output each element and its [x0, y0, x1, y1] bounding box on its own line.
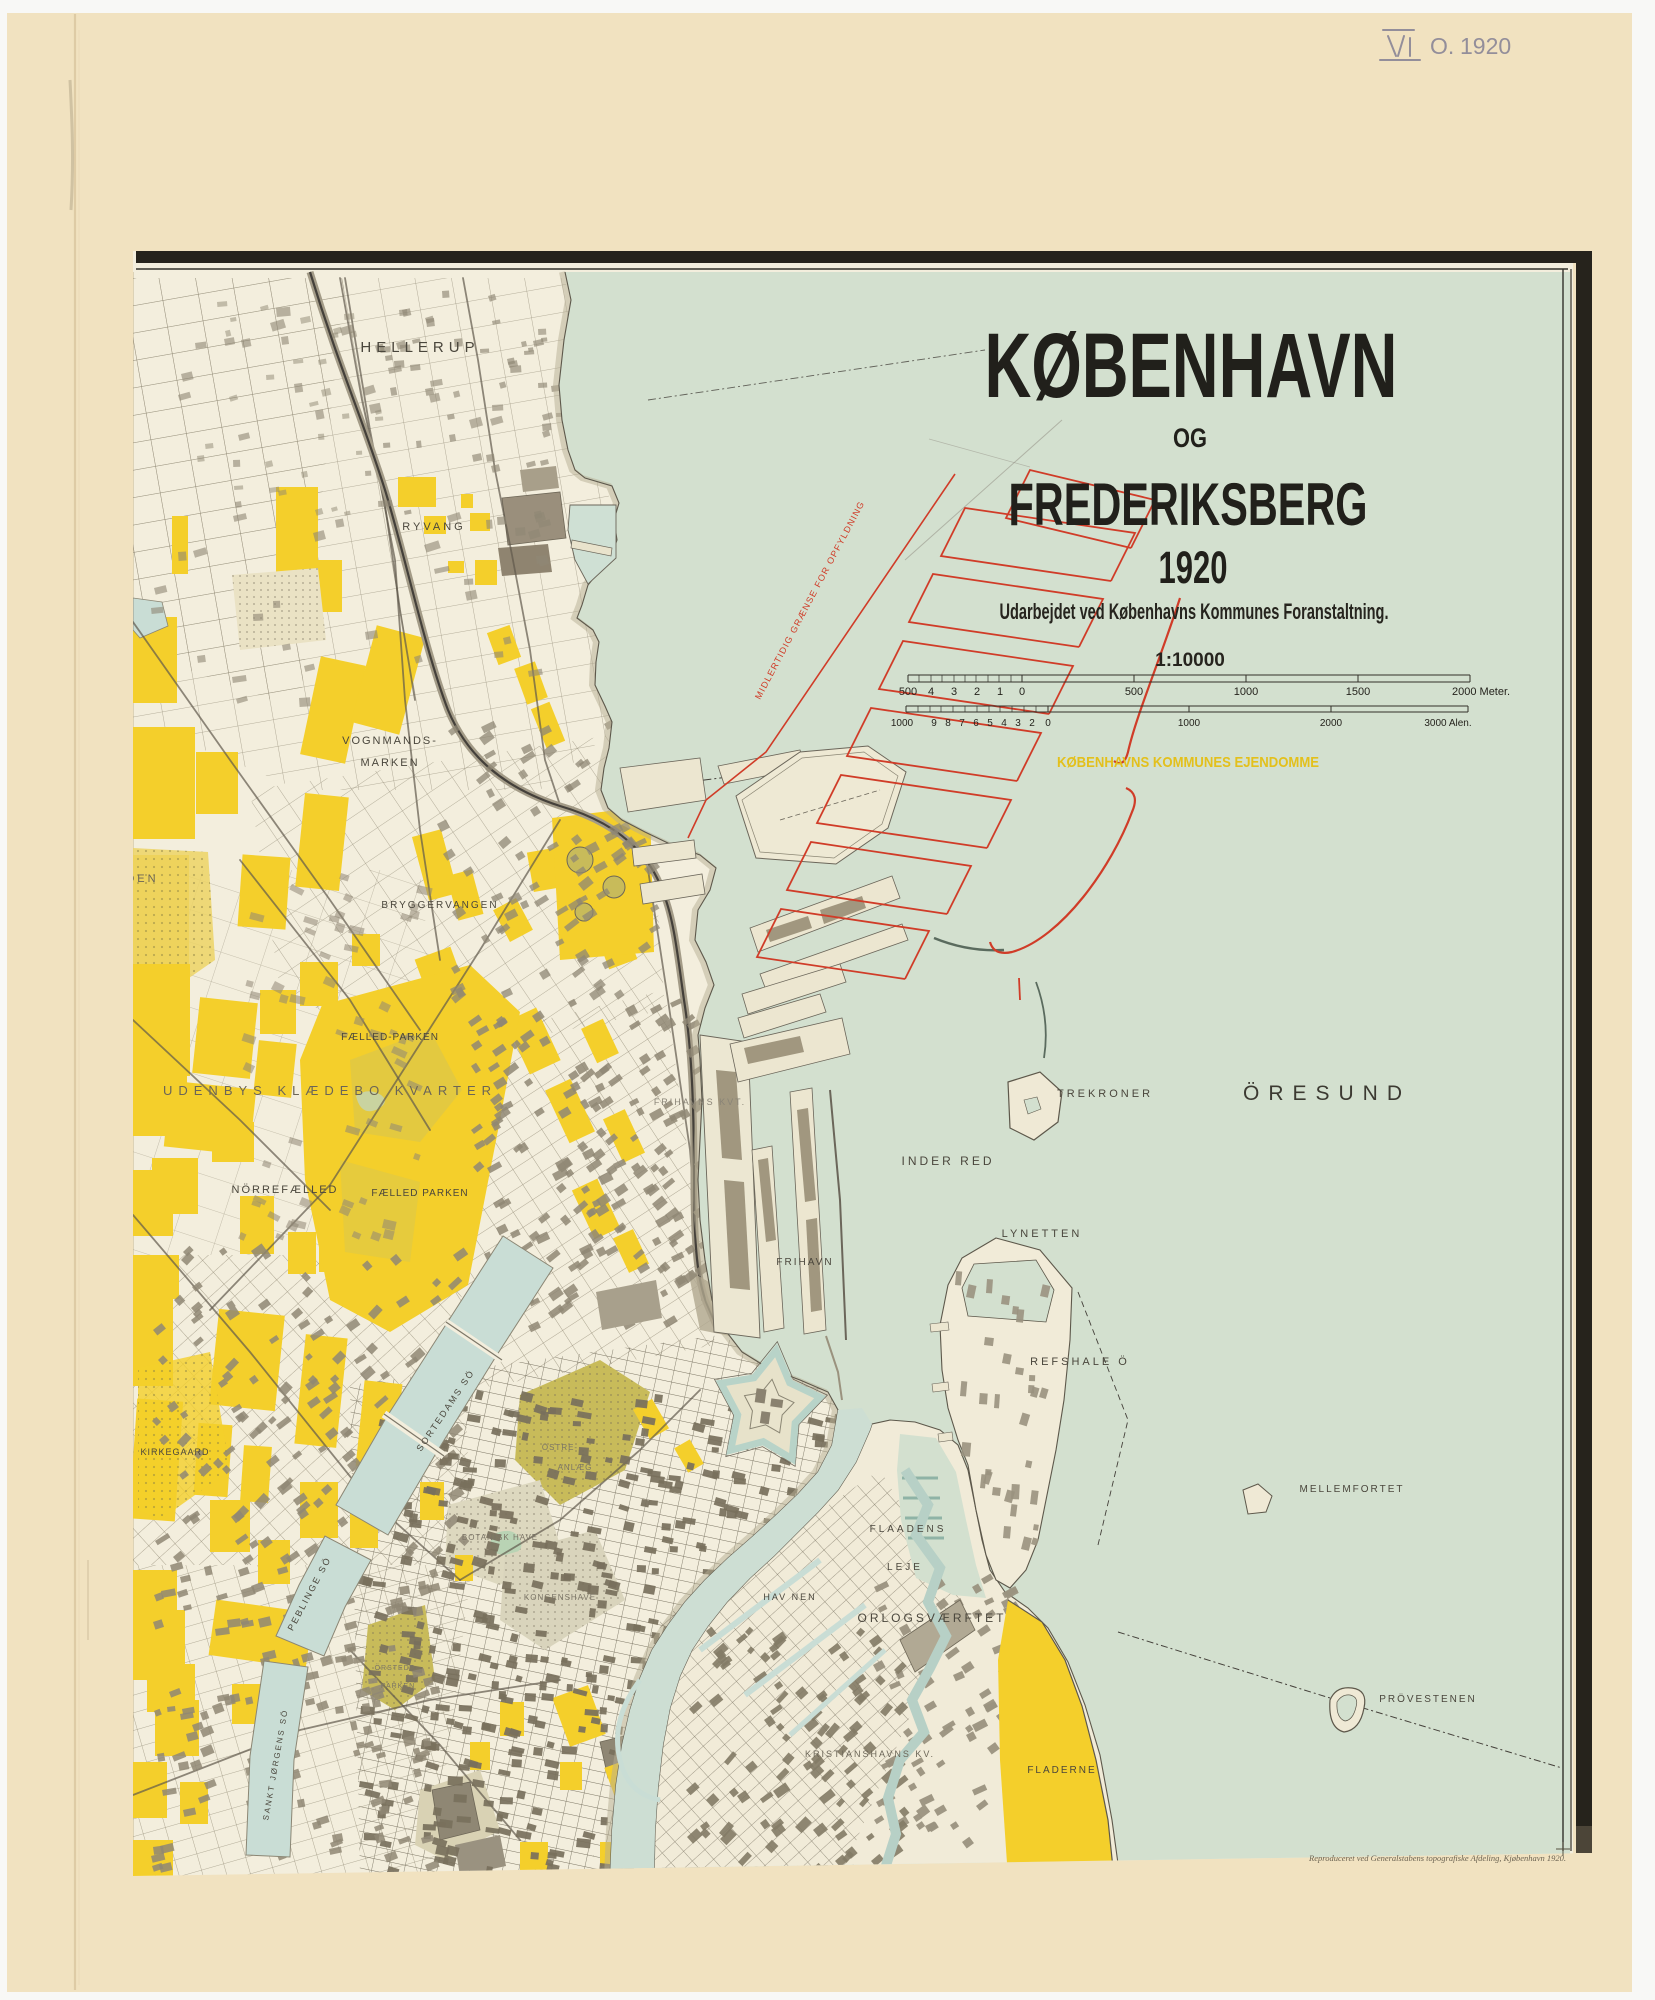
svg-text:FÆLLED-PARKEN: FÆLLED-PARKEN: [341, 1032, 439, 1043]
svg-text:KØBENHAVN: KØBENHAVN: [985, 315, 1398, 417]
svg-text:Udarbejdet ved Københavns Komm: Udarbejdet ved Københavns Kommunes Foran…: [1000, 599, 1389, 624]
svg-text:PRÖVESTENEN: PRÖVESTENEN: [1379, 1693, 1477, 1705]
svg-text:0: 0: [1019, 686, 1025, 698]
svg-text:TREKRONER: TREKRONER: [1057, 1088, 1153, 1100]
svg-text:OG: OG: [1173, 423, 1207, 453]
svg-text:REFSHALE Ö: REFSHALE Ö: [1030, 1356, 1130, 1368]
svg-text:Reproduceret ved Generalstaben: Reproduceret ved Generalstabens topograf…: [1308, 1853, 1566, 1863]
svg-text:HELLERUP: HELLERUP: [360, 339, 479, 356]
svg-text:500: 500: [1125, 686, 1143, 698]
svg-text:1920: 1920: [1159, 542, 1228, 593]
svg-text:6: 6: [973, 718, 979, 729]
svg-text:3000 Alen.: 3000 Alen.: [1424, 718, 1471, 729]
svg-text:1:10000: 1:10000: [1155, 650, 1225, 671]
svg-text:8: 8: [945, 718, 951, 729]
svg-text:FRIHAVN: FRIHAVN: [776, 1257, 833, 1268]
svg-text:HAV NEN: HAV NEN: [763, 1592, 816, 1602]
svg-text:FREDERIKSBERG: FREDERIKSBERG: [1009, 471, 1368, 538]
svg-text:KØBENHAVNS KOMMUNES EJENDOMME: KØBENHAVNS KOMMUNES EJENDOMME: [1057, 754, 1319, 771]
svg-text:UDENBYS KLÆDEBO KVARTER: UDENBYS KLÆDEBO KVARTER: [163, 1083, 497, 1098]
svg-text:FÆLLED PARKEN: FÆLLED PARKEN: [371, 1188, 468, 1199]
svg-text:ÖRESUND: ÖRESUND: [1243, 1082, 1411, 1105]
svg-text:3: 3: [951, 686, 957, 698]
svg-text:2000 Meter.: 2000 Meter.: [1452, 686, 1510, 698]
svg-text:O.: O.: [1430, 33, 1454, 59]
svg-text:2: 2: [1029, 718, 1035, 729]
svg-text:MELLEMFORTET: MELLEMFORTET: [1300, 1484, 1405, 1495]
svg-text:4: 4: [928, 686, 934, 698]
svg-text:KONGENSHAVE: KONGENSHAVE: [524, 1593, 596, 1602]
svg-text:ORLOGSVÆRFTET: ORLOGSVÆRFTET: [857, 1611, 1006, 1625]
svg-text:4: 4: [1001, 718, 1007, 729]
svg-text:ÖSTRE-: ÖSTRE-: [542, 1443, 578, 1452]
svg-text:FLAADENS: FLAADENS: [870, 1524, 947, 1535]
svg-text:FLADERNE: FLADERNE: [1027, 1765, 1096, 1776]
svg-text:2: 2: [974, 686, 980, 698]
svg-text:9: 9: [931, 718, 937, 729]
svg-text:5: 5: [987, 718, 993, 729]
svg-text:2000: 2000: [1320, 718, 1343, 729]
svg-text:MARKEN: MARKEN: [360, 757, 419, 769]
svg-text:1000: 1000: [1234, 686, 1258, 698]
svg-text:VOGNMANDS-: VOGNMANDS-: [342, 735, 438, 747]
svg-text:1920: 1920: [1460, 33, 1511, 59]
svg-text:PARKEN: PARKEN: [381, 1683, 415, 1690]
svg-text:ANLÆG: ANLÆG: [558, 1463, 593, 1472]
svg-text:BOTANISK HAVE: BOTANISK HAVE: [462, 1533, 538, 1542]
svg-text:KRISTIANSHAVNS KV.: KRISTIANSHAVNS KV.: [805, 1749, 935, 1759]
svg-text:500: 500: [899, 686, 917, 698]
svg-text:FRIHAVNS KVT.: FRIHAVNS KVT.: [654, 1097, 746, 1107]
svg-text:KIRKEGAARD: KIRKEGAARD: [140, 1447, 209, 1457]
svg-text:1000: 1000: [891, 718, 914, 729]
svg-text:NÖRREFÆLLED: NÖRREFÆLLED: [232, 1184, 339, 1196]
svg-text:7: 7: [959, 718, 965, 729]
svg-text:RYVANG: RYVANG: [402, 521, 465, 533]
svg-text:LEJE: LEJE: [887, 1562, 923, 1573]
svg-text:3: 3: [1015, 718, 1021, 729]
svg-text:0: 0: [1045, 718, 1051, 729]
svg-text:BRYGGERVANGEN: BRYGGERVANGEN: [381, 900, 498, 911]
svg-text:INDER RED: INDER RED: [901, 1154, 994, 1168]
svg-text:1000: 1000: [1178, 718, 1201, 729]
svg-text:1: 1: [997, 686, 1003, 698]
svg-text:LYNETTEN: LYNETTEN: [1002, 1228, 1083, 1240]
svg-text:ÖRSTEDS: ÖRSTEDS: [375, 1664, 416, 1672]
svg-text:1500: 1500: [1346, 686, 1370, 698]
